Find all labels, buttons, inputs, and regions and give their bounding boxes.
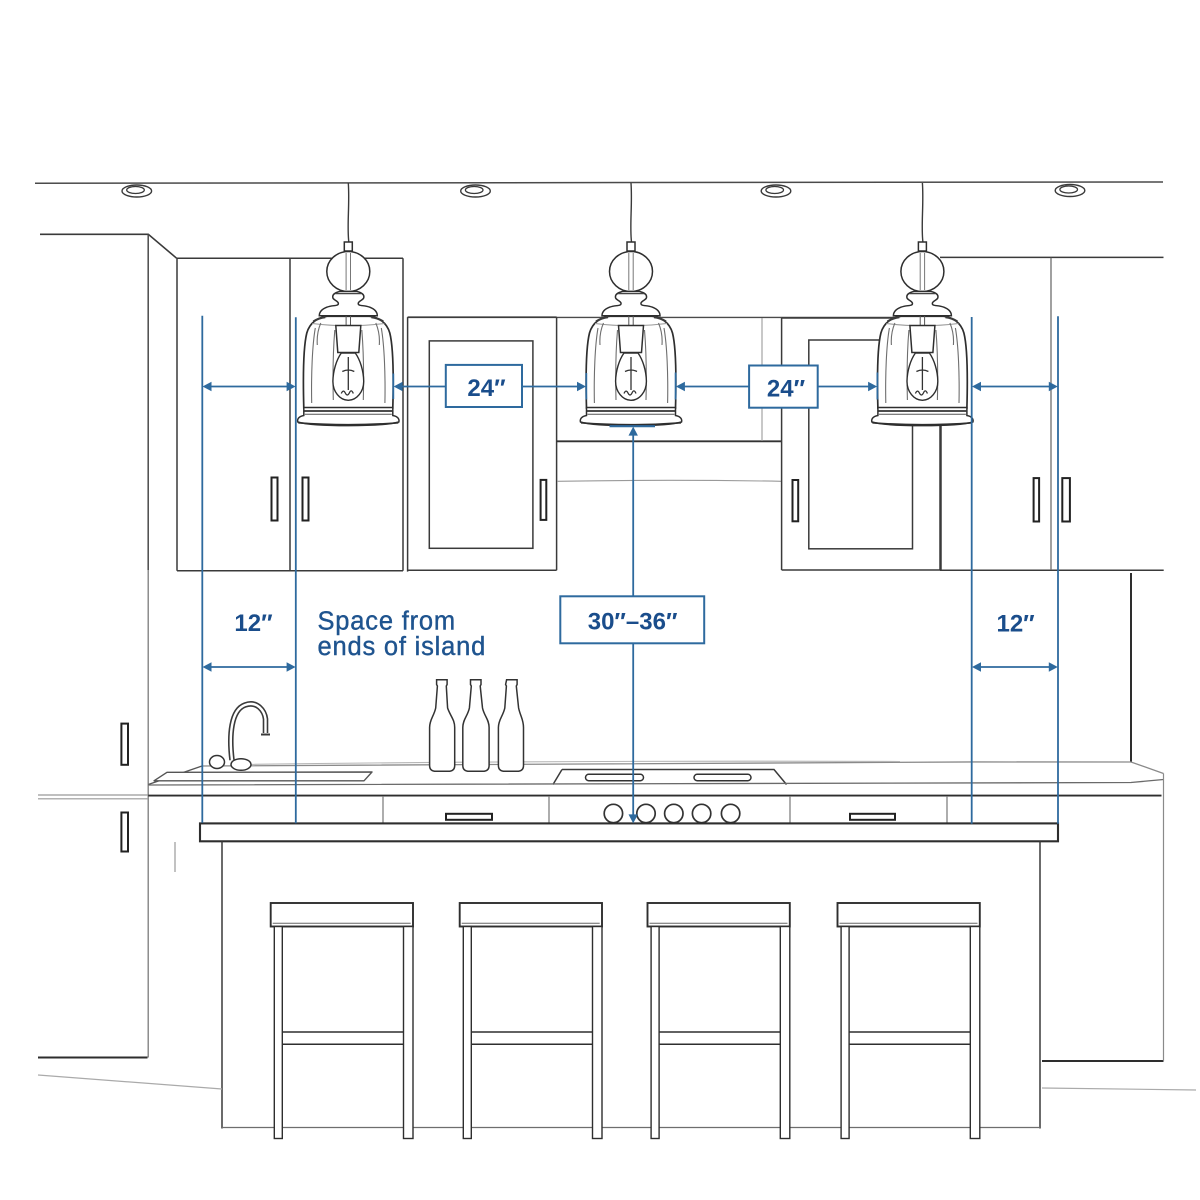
svg-text:12″: 12″ — [234, 610, 273, 637]
svg-text:24″: 24″ — [767, 376, 806, 403]
svg-text:ends of island: ends of island — [318, 633, 487, 661]
svg-text:Space from: Space from — [318, 608, 456, 636]
svg-text:30″–36″: 30″–36″ — [588, 609, 678, 636]
svg-text:24″: 24″ — [467, 375, 506, 402]
svg-text:12″: 12″ — [996, 611, 1035, 638]
